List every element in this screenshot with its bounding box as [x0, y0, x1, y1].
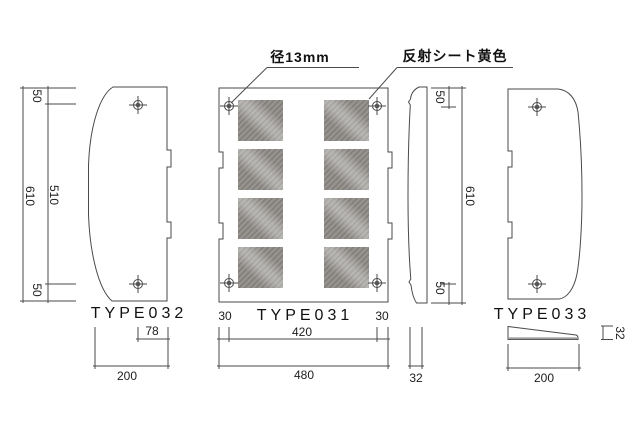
dim-side-thickness: 32 — [409, 371, 422, 385]
leader-lines — [231, 68, 513, 104]
reflective-sheet-note: 反射シート黄色 — [403, 46, 508, 66]
reflective-sheet-patch — [324, 198, 369, 239]
reflective-sheet-patch — [324, 100, 369, 141]
dim-type032-top-offset: 50 — [30, 89, 44, 102]
reflective-sheet-patch — [238, 100, 283, 141]
reflective-sheet-patches — [238, 100, 369, 288]
reflective-sheet-patch — [238, 149, 283, 190]
dim-type032-width: 200 — [117, 369, 137, 383]
dim-type031-right-offset: 30 — [375, 309, 388, 323]
dim-side-top-offset: 50 — [433, 90, 447, 103]
dim-type031-hole-span: 420 — [292, 325, 312, 339]
dim-side-bottom-offset: 50 — [433, 281, 447, 294]
bolt-hole-marker — [528, 275, 546, 293]
dim-type032-inner-height: 510 — [47, 185, 61, 205]
dim-type032-hole-to-edge: 78 — [145, 324, 158, 338]
bolt-hole-marker — [220, 274, 238, 292]
dim-type032-overall-height: 610 — [23, 186, 37, 206]
part-label-type033: TYPE033 — [494, 306, 590, 324]
part-label-type032: TYPE032 — [91, 305, 187, 323]
reflective-sheet-patch — [324, 149, 369, 190]
type033-outline — [508, 89, 582, 299]
bolt-hole-marker — [528, 98, 546, 116]
dim-type033-width: 200 — [534, 371, 554, 385]
bolt-hole-marker — [129, 275, 147, 293]
dim-type031-overall-width: 480 — [294, 368, 314, 382]
dim-type032-bottom-offset: 50 — [30, 283, 44, 296]
type031-side-dimension-lines — [408, 86, 466, 369]
reflective-sheet-patch — [324, 247, 369, 288]
dim-side-overall-height: 610 — [463, 186, 477, 206]
technical-drawing: 径13mm 反射シート黄色 TYPE032 TYPE031 TYPE033 50… — [0, 0, 640, 424]
reflective-sheet-patch — [238, 198, 283, 239]
hole-diameter-note: 径13mm — [270, 47, 329, 67]
dim-type031-left-offset: 30 — [218, 309, 231, 323]
bolt-hole-marker — [129, 96, 147, 114]
type031-side-outline — [408, 87, 427, 303]
dim-type033-height: 32 — [613, 326, 627, 339]
bolt-hole-marker — [220, 97, 238, 115]
type032-outline — [89, 87, 172, 301]
bolt-hole-marker — [368, 274, 386, 292]
bolt-hole-marker — [368, 97, 386, 115]
part-label-type031: TYPE031 — [257, 307, 353, 325]
reflective-sheet-patch — [238, 247, 283, 288]
